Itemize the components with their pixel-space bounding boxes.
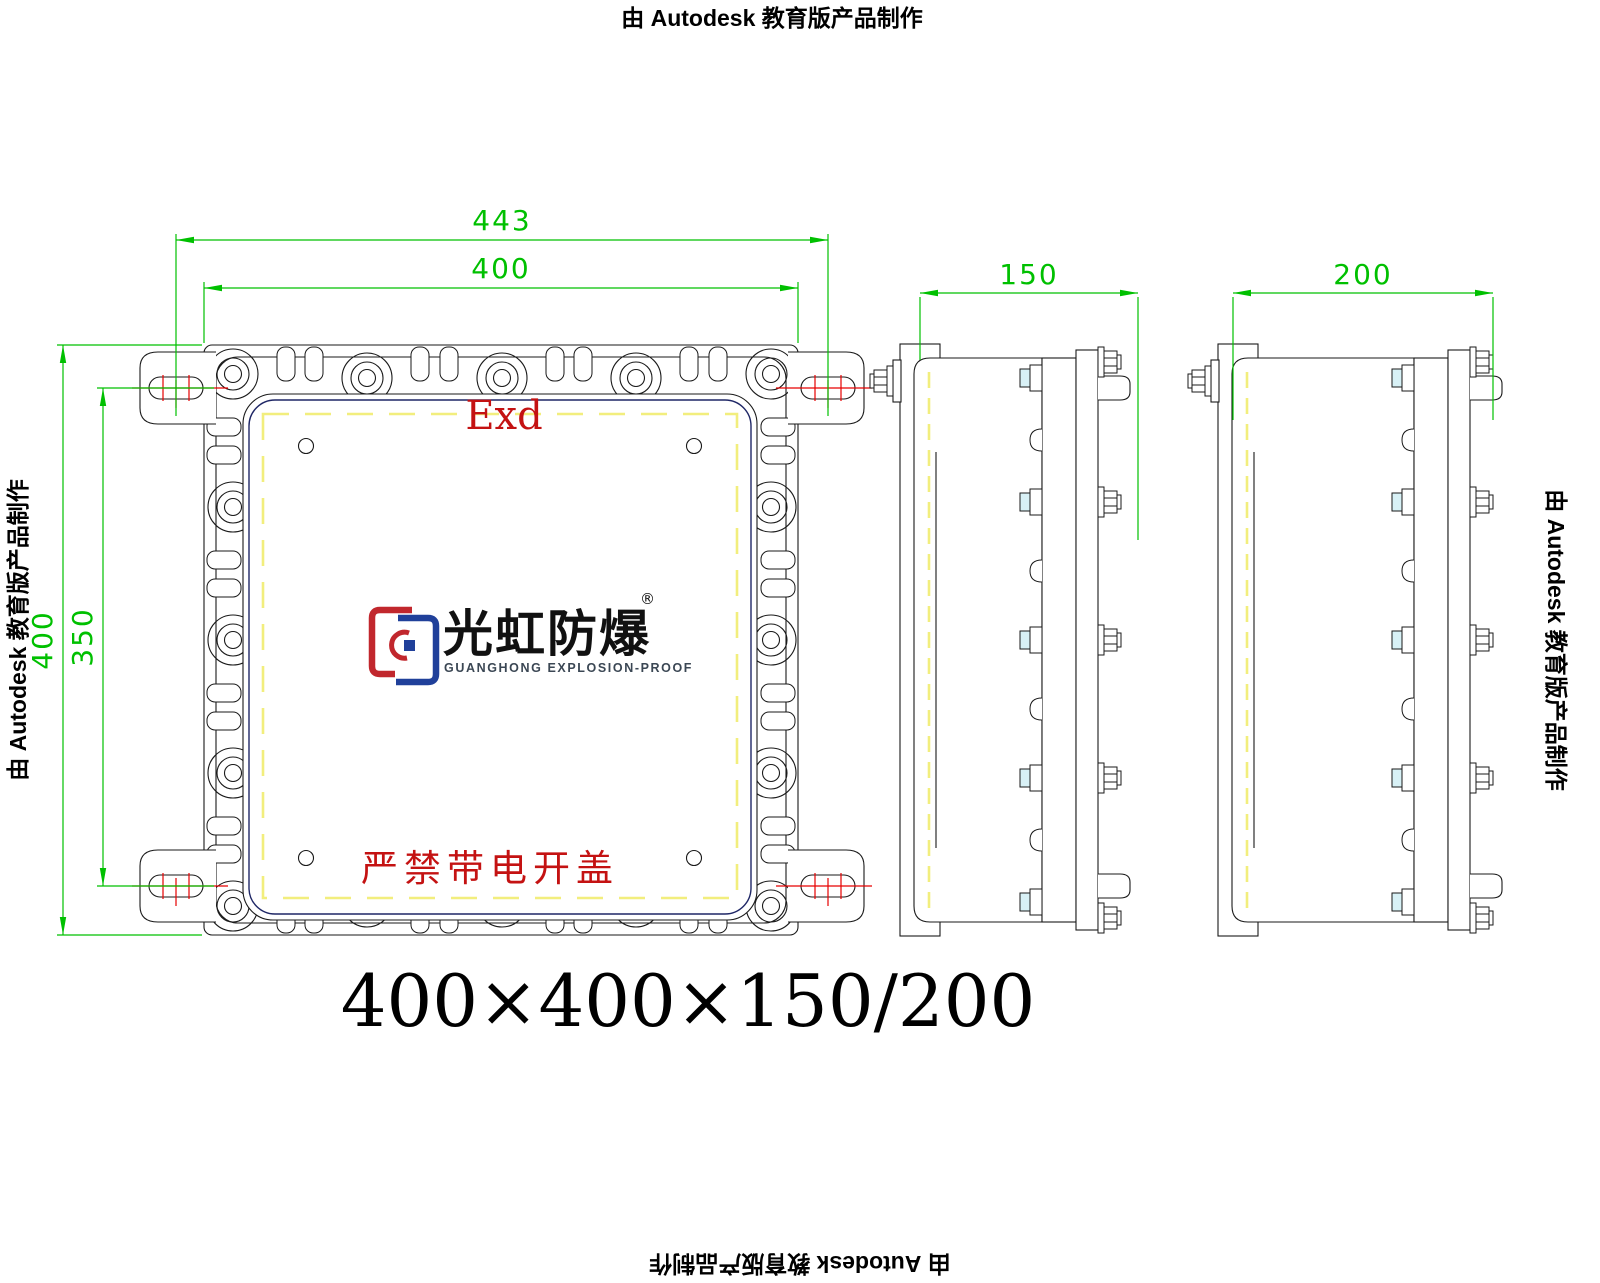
warning-text: 严禁带电开盖 — [361, 847, 619, 890]
lug-plate-edge — [893, 360, 901, 402]
side-view-150 — [870, 344, 1130, 936]
lug-bolt — [870, 366, 893, 396]
lug-bolt — [1188, 366, 1211, 396]
dim-height-label: 400 — [26, 610, 59, 669]
side-lug-bottom — [1470, 874, 1502, 898]
cover-bolts — [1470, 347, 1493, 933]
flange-profile — [1042, 358, 1076, 922]
side-lug-top — [1098, 376, 1130, 400]
cad-drawing-page: { "watermark": { "text": "由 Autodesk 教育版… — [0, 0, 1600, 1280]
box-body-profile — [1232, 358, 1414, 922]
drawing-title: 400×400×150/200 — [341, 959, 1036, 1043]
logo-name-en: GUANGHONG EXPLOSION-PROOF — [444, 661, 693, 675]
cover-profile — [1076, 350, 1098, 930]
technical-drawing-canvas: Exd 严禁带电开盖 光虹防爆 ® GUANGHONG EXPLOSION-PR… — [0, 0, 1600, 1280]
dim-overall-width-label: 443 — [472, 204, 531, 237]
dim-depth1-label: 150 — [999, 258, 1058, 291]
lug-plate-edge — [1211, 360, 1219, 402]
dim-width-label: 400 — [471, 252, 530, 285]
cover-bolts — [1098, 347, 1121, 933]
side-lug-top — [1470, 376, 1502, 400]
front-view: Exd 严禁带电开盖 光虹防爆 ® GUANGHONG EXPLOSION-PR… — [132, 345, 872, 935]
dim-mount-spacing-label: 350 — [66, 607, 99, 666]
side-view-200 — [1188, 344, 1502, 936]
logo-name-cn: 光虹防爆 — [443, 605, 651, 663]
mounting-lug — [776, 850, 872, 922]
flange-profile — [1414, 358, 1448, 922]
logo-registered-mark: ® — [640, 590, 655, 608]
exd-marking: Exd — [465, 393, 542, 439]
side-lug-bottom — [1098, 874, 1130, 898]
dim-depth2-label: 200 — [1333, 258, 1392, 291]
mounting-lug — [776, 352, 872, 424]
cover-profile — [1448, 350, 1470, 930]
